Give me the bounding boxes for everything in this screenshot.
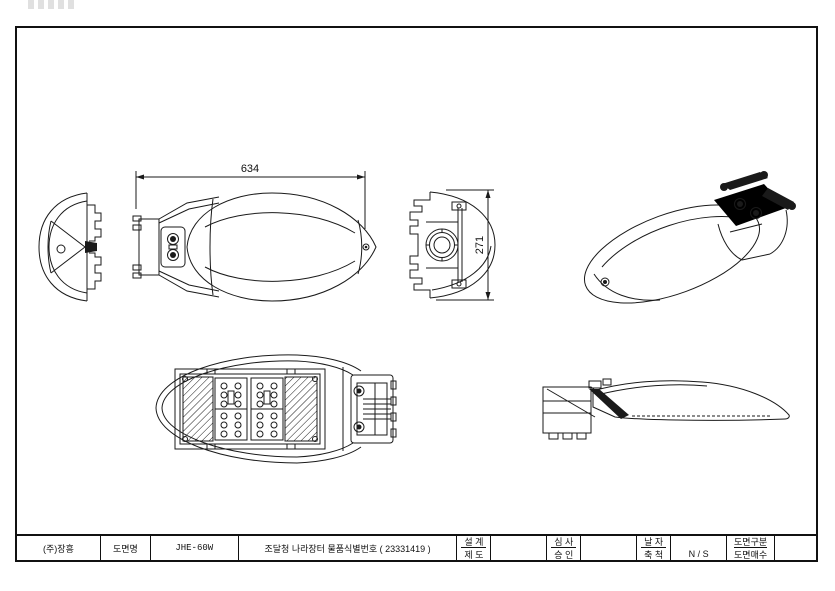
view-top-plan: 634 [127, 157, 382, 307]
sheets-label: 도면매수 [734, 548, 767, 561]
corner-stamp [28, 0, 76, 9]
view-front-end: 271 [402, 184, 502, 306]
dim-height-text: 271 [474, 236, 486, 254]
drawing-frame: 634 [15, 26, 818, 562]
scale-label: 축 척 [641, 548, 666, 561]
design-label: 설 계 [461, 535, 486, 548]
view-isometric [572, 162, 802, 317]
dim-length-text: 634 [241, 163, 259, 175]
review-label: 심 사 [551, 535, 576, 548]
view-side-elevation [537, 357, 797, 447]
view-bottom-plan [147, 347, 397, 469]
date-label: 날 자 [641, 535, 666, 548]
drawing-name-label: 도면명 [101, 536, 151, 560]
scale-value: N / S [689, 548, 709, 560]
procurement-id-cell: 조달청 나라장터 물품식별번호 ( 23331419 ) [239, 536, 458, 560]
view-left-end [27, 187, 117, 307]
drawing-name-value: JHE-60W [151, 536, 239, 560]
approval-label: 승 인 [551, 548, 576, 561]
company-cell: (주)장흥 [17, 536, 101, 560]
category-label: 도면구분 [734, 535, 767, 548]
title-block: (주)장흥 도면명 JHE-60W 조달청 나라장터 물품식별번호 ( 2333… [17, 534, 816, 560]
drawing-sheet: 634 [0, 0, 835, 591]
draft-label: 제 도 [461, 548, 486, 561]
